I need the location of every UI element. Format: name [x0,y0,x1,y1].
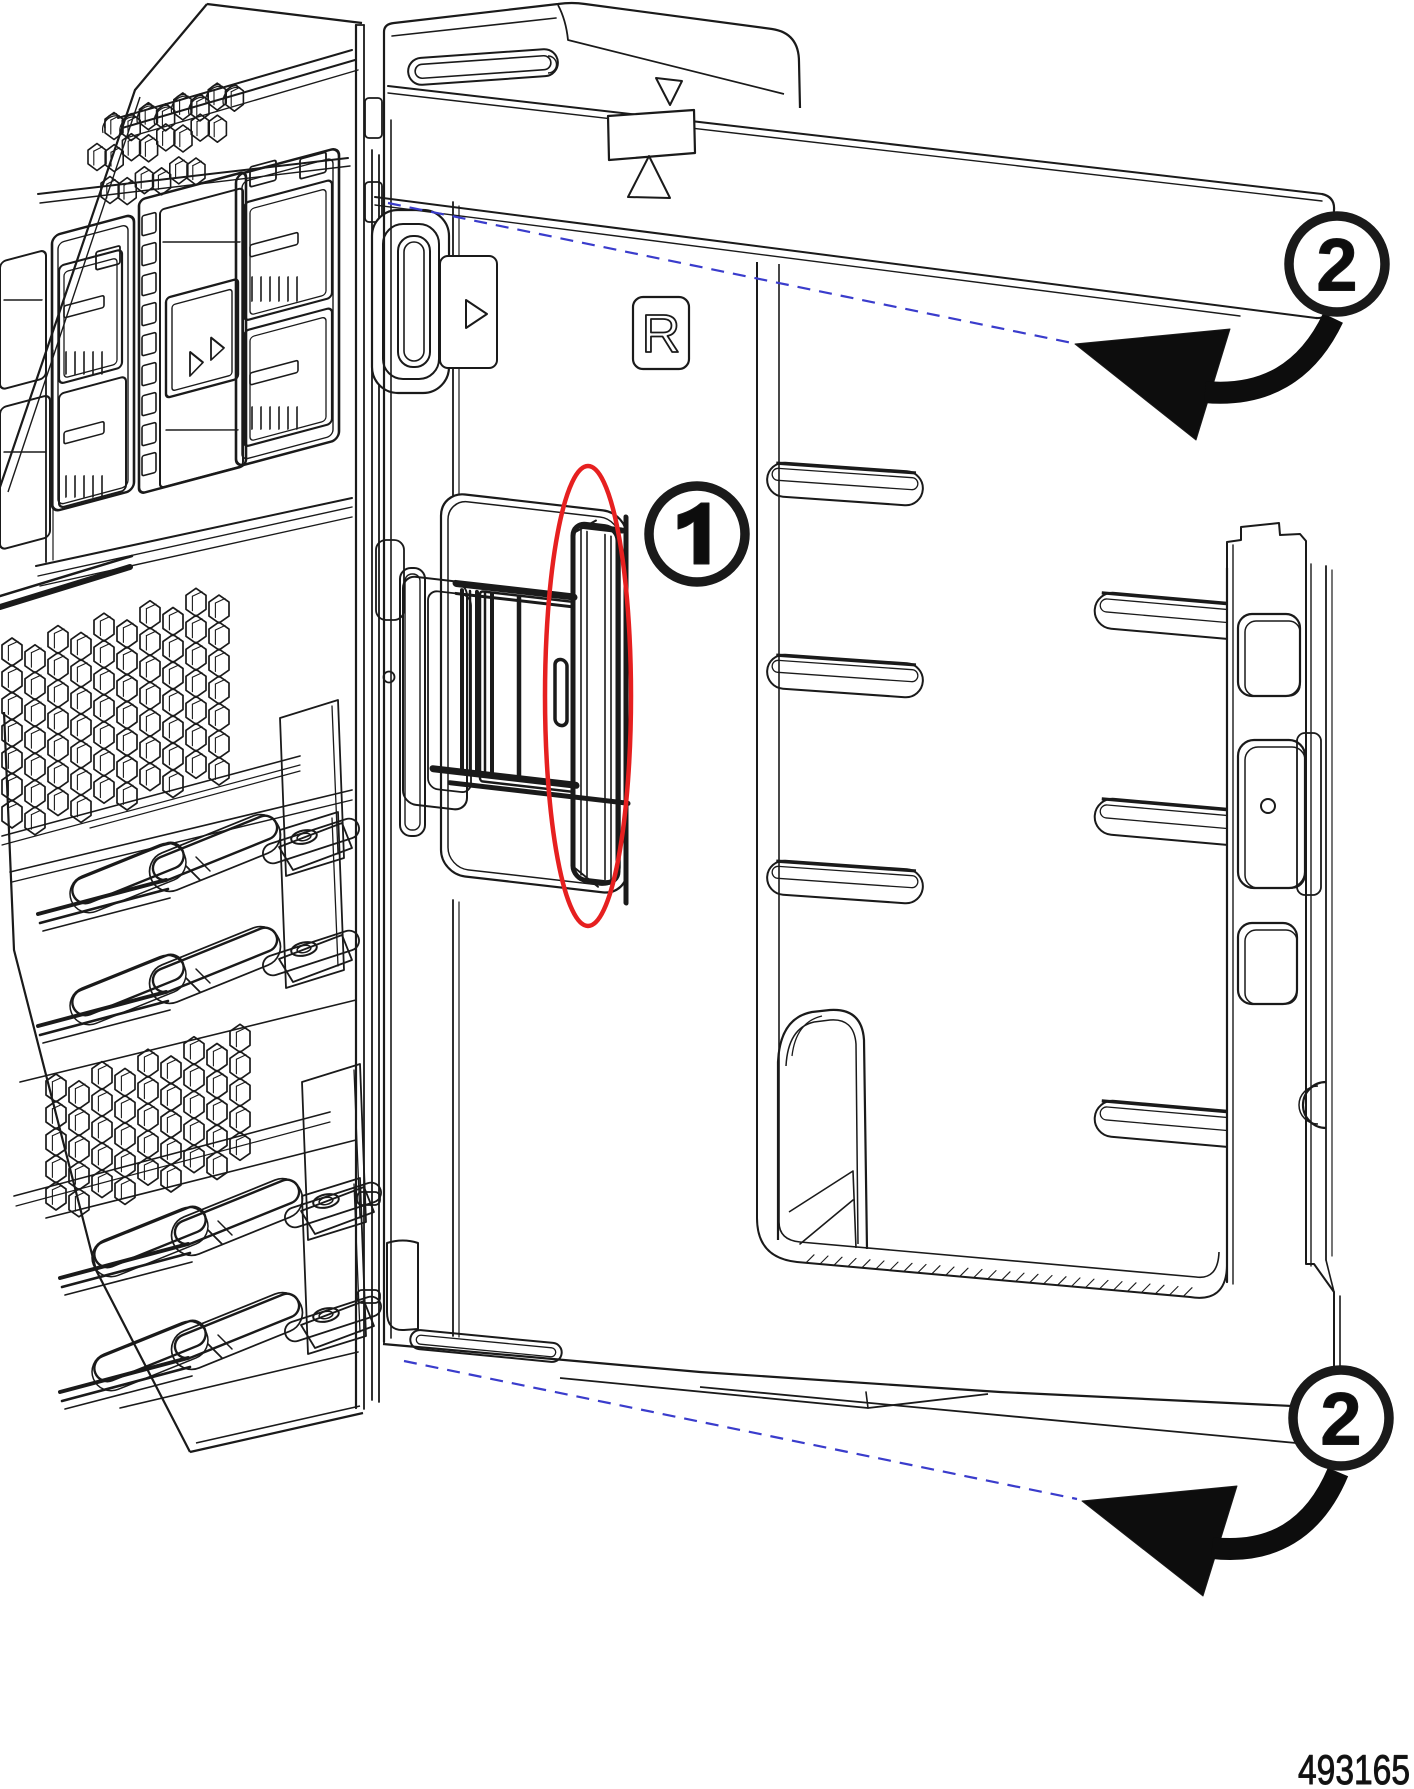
svg-text:2: 2 [1320,1378,1361,1461]
svg-text:493165: 493165 [1298,1746,1410,1789]
svg-text:R: R [642,304,681,364]
svg-text:2: 2 [1316,224,1357,307]
